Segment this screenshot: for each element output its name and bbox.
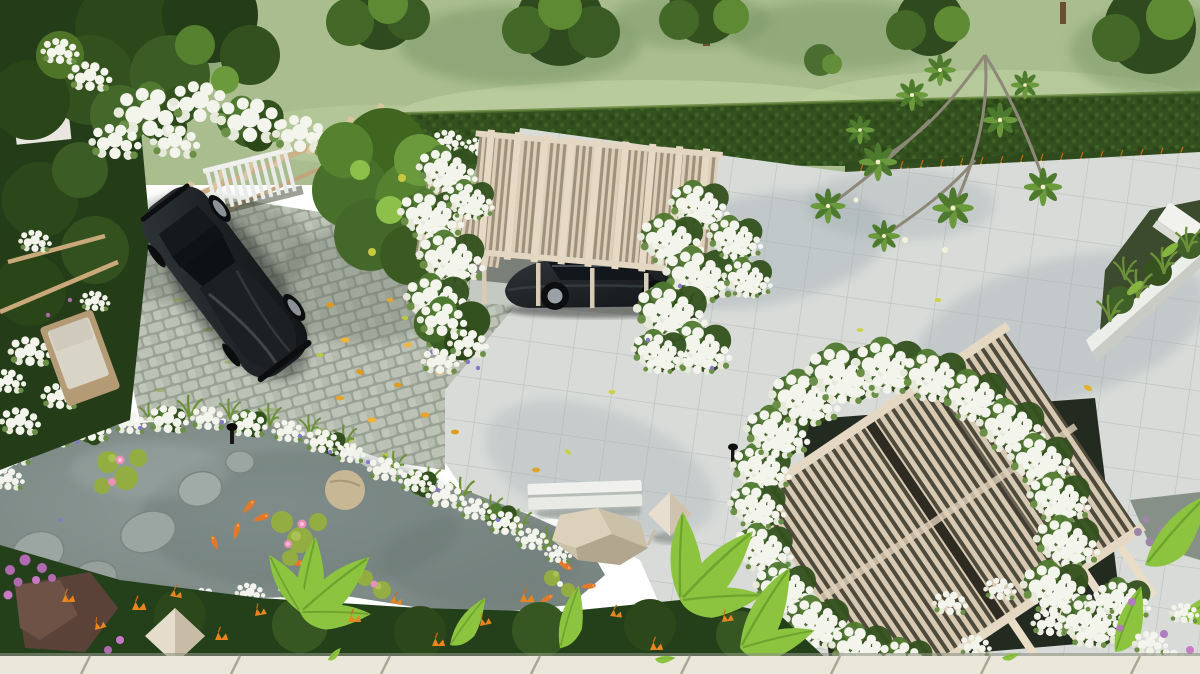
- garden-render: Top-down 3D architectural rendering of a…: [0, 0, 1200, 674]
- garden-render-canvas: [0, 0, 1200, 674]
